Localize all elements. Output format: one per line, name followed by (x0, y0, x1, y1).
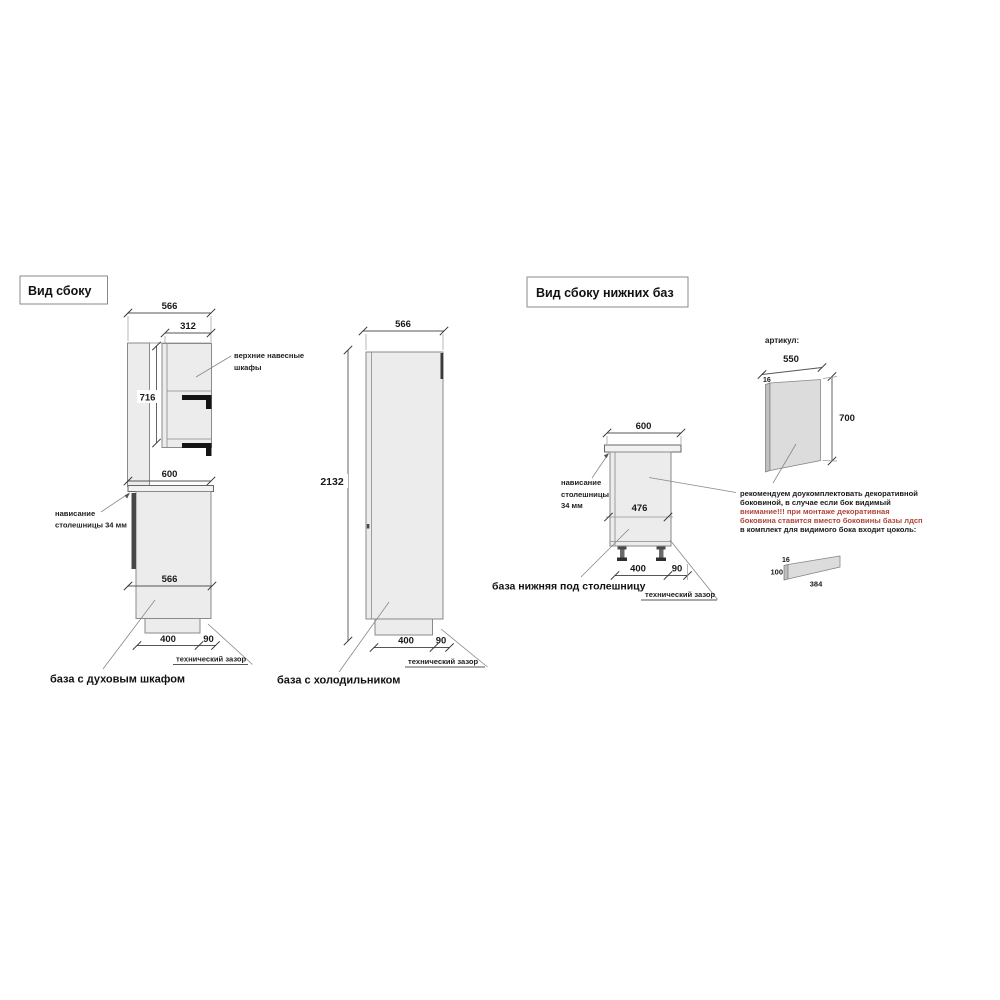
upper-cabinets-label: верхние навесные шкафы (196, 351, 304, 377)
countertop (605, 445, 682, 452)
upper-cabinets-label-line1: верхние навесные (234, 351, 304, 360)
note-line-warning: боковина ставится вместо боковины базы л… (740, 516, 923, 525)
lower-base-caption: база нижняя под столешницу (492, 581, 646, 593)
oven-base-caption: база с духовым шкафом (50, 674, 185, 686)
dim-400: 400 (160, 634, 176, 645)
page-title: Вид сбоку (28, 284, 92, 298)
decorative-panel-diagram: артикул: 550 16 700 (758, 336, 855, 483)
cabinet-leg (656, 547, 666, 562)
panel-face (770, 380, 821, 471)
tech-gap-text: технический зазор (645, 590, 716, 599)
overhang-label-line3: 34 мм (561, 501, 583, 510)
decorative-side-strip (132, 493, 137, 569)
dim-700: 700 (839, 413, 855, 424)
dim-2132: 2132 (320, 476, 344, 488)
tall-side-panel (128, 343, 150, 487)
arrowhead (125, 493, 130, 499)
dim-counter-depth: 600 (603, 421, 685, 444)
dim-716: 716 (140, 393, 156, 404)
overhang-label: нависание столешницы 34 мм (55, 493, 130, 530)
arrowhead (604, 453, 609, 458)
door-handle (367, 524, 370, 529)
dim-600: 600 (162, 469, 178, 480)
tech-gap-text: технический зазор (176, 655, 247, 664)
dim-total-depth: 566 (124, 301, 215, 342)
hinge-mark (441, 353, 444, 379)
shelf-bracket (206, 395, 212, 409)
dim-panel-height: 700 (823, 372, 855, 465)
dim-400: 400 (398, 636, 414, 647)
plinth (375, 619, 433, 635)
dim-panel-width: 550 (758, 354, 826, 379)
dim-476: 476 (632, 503, 648, 514)
overhang-label: нависание столешницы 34 мм (561, 453, 609, 510)
oven-base-body (136, 492, 211, 619)
dim-plinth-gap: 400 90 (370, 636, 454, 652)
dim-plinth-gap: 400 90 (133, 634, 220, 650)
note-line: боковиной, в случае если бок видимый (740, 498, 891, 507)
dim-plinth-gap: 400 90 (611, 564, 692, 581)
countertop (128, 486, 214, 492)
fridge-cabinet-body (366, 352, 443, 619)
dim-depth: 566 (359, 319, 448, 350)
fridge-base-caption: база с холодильником (277, 675, 400, 687)
drawing-canvas: Вид сбоку 566 312 (0, 0, 1000, 1000)
dim-566-top: 566 (162, 301, 178, 312)
dim-600: 600 (636, 421, 652, 432)
technical-drawing-page: Вид сбоку 566 312 (0, 0, 1000, 1000)
upper-cabinets-label-line2: шкафы (234, 363, 261, 372)
section-title: Вид сбоку нижних баз (536, 286, 674, 300)
plinth-edge (784, 565, 788, 581)
title-side-view-lower: Вид сбоку нижних баз (527, 277, 688, 307)
dim-upper-depth: 312 (161, 321, 215, 343)
dim-16: 16 (782, 557, 790, 564)
notes-block: рекомендуем доукомплектовать декоративно… (740, 489, 923, 534)
overhang-label-line2: столешницы (561, 490, 609, 499)
upper-wall-cabinets (162, 344, 212, 457)
dim-312: 312 (180, 321, 196, 332)
dim-384: 384 (810, 580, 823, 589)
panel-edge (766, 383, 771, 472)
dim-400: 400 (630, 564, 646, 575)
dim-90: 90 (672, 564, 683, 575)
dim-height: 2132 (317, 346, 352, 645)
oven-base-diagram: 566 312 716 (50, 301, 304, 686)
cabinet-leg (617, 547, 627, 562)
plinth (145, 619, 200, 634)
plinth-part-diagram: 16 100 384 (770, 556, 840, 589)
note-line: рекомендуем доукомплектовать декоративно… (740, 489, 918, 498)
dim-90: 90 (203, 634, 214, 645)
overhang-label-line1: нависание (561, 478, 601, 487)
lower-base-body (610, 452, 671, 546)
overhang-label-line1: нависание (55, 509, 95, 518)
dim-90: 90 (436, 636, 447, 647)
dim-550: 550 (783, 354, 799, 365)
dim-566: 566 (395, 319, 411, 330)
note-line-warning: внимание!!! при монтаже декоративная (740, 507, 890, 516)
shelf-bracket (206, 443, 212, 456)
article-label: артикул: (765, 336, 799, 345)
title-side-view: Вид сбоку (20, 276, 108, 304)
fridge-base-diagram: 566 2132 400 90 технический зазор (277, 319, 488, 687)
overhang-label-line2: столешницы 34 мм (55, 521, 127, 530)
dim-566-base: 566 (162, 574, 178, 585)
dim-100: 100 (770, 568, 783, 577)
plinth-face (788, 556, 840, 579)
note-line: в комплект для видимого бока входит цоко… (740, 525, 916, 534)
tech-gap-text: технический зазор (408, 657, 479, 666)
lower-base-diagram: 600 476 нависание (492, 421, 736, 600)
